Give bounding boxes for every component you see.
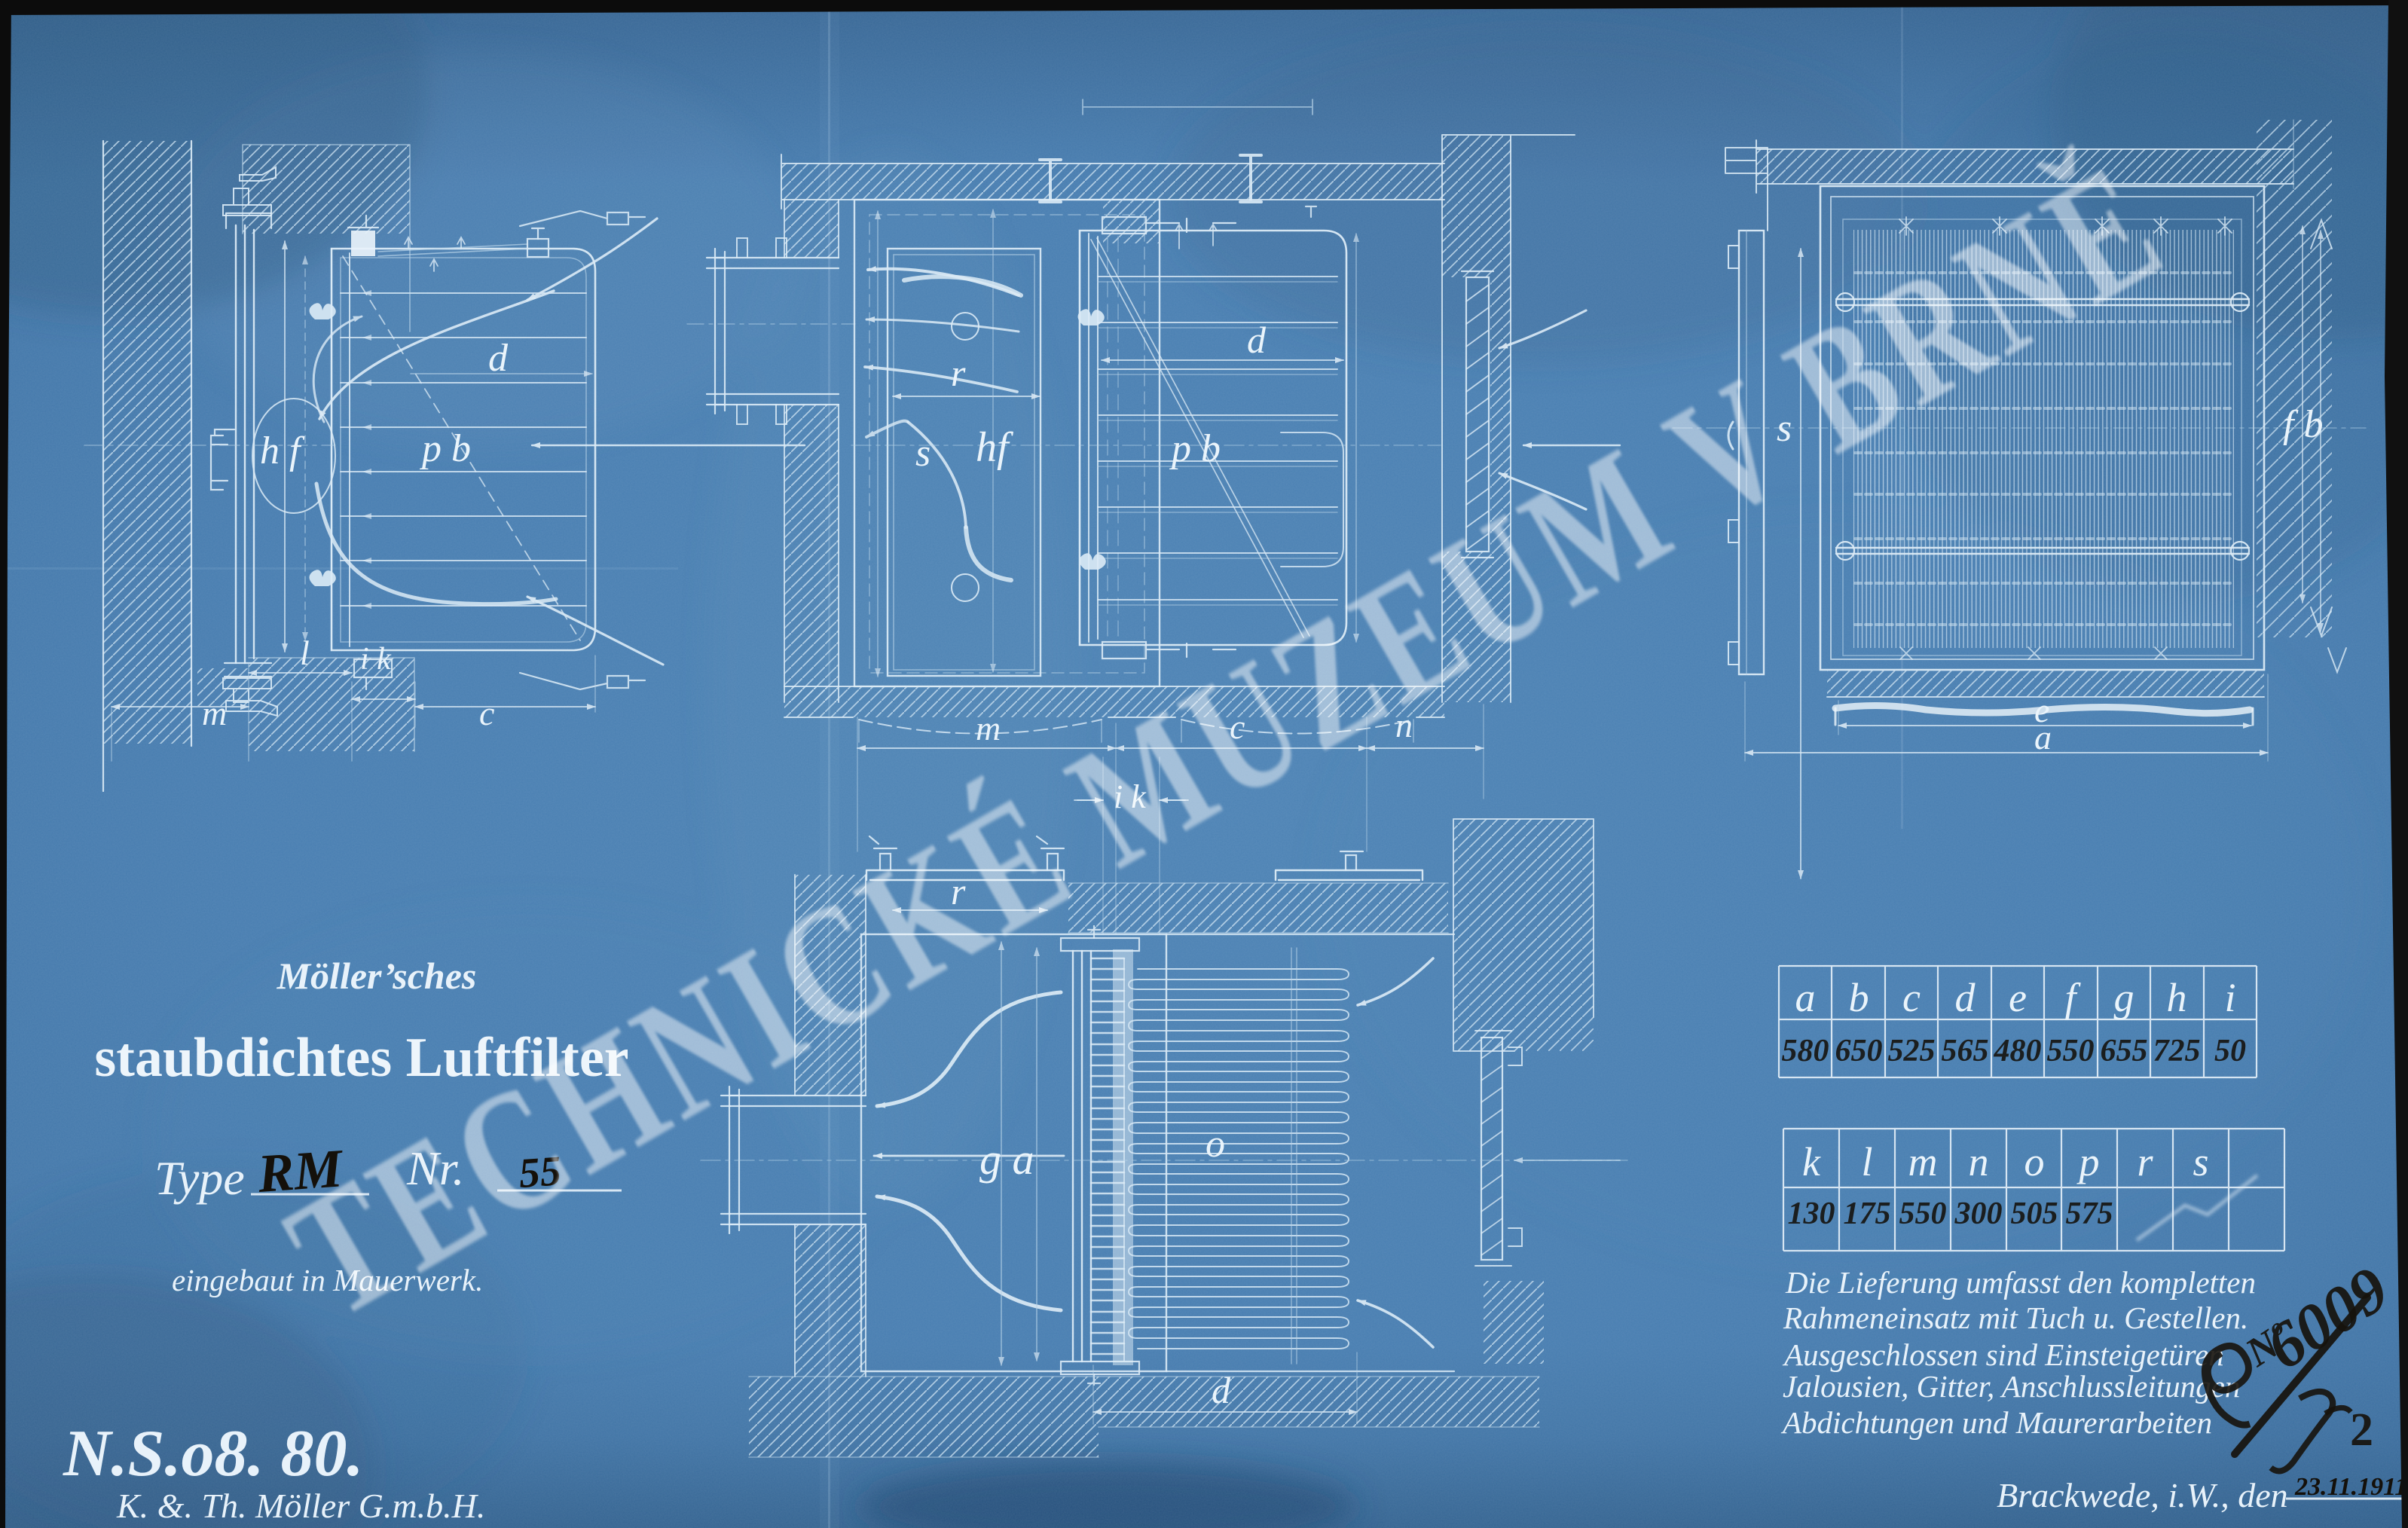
svg-text:505: 505 <box>2011 1196 2058 1231</box>
svg-text:300: 300 <box>1954 1196 2003 1231</box>
svg-text:N.S.o8. 80.: N.S.o8. 80. <box>63 1417 364 1490</box>
svg-text:Type: Type <box>154 1151 245 1205</box>
svg-text:h f: h f <box>260 429 305 472</box>
svg-text:Brackwede, i.W., den: Brackwede, i.W., den <box>1997 1476 2288 1514</box>
svg-text:d: d <box>1955 975 1976 1020</box>
svg-text:g: g <box>2114 975 2135 1020</box>
svg-text:s: s <box>2193 1139 2208 1184</box>
svg-text:655: 655 <box>2101 1034 2148 1068</box>
svg-text:565: 565 <box>1942 1034 1989 1068</box>
svg-text:r: r <box>2137 1139 2153 1184</box>
svg-text:i k: i k <box>360 642 392 677</box>
svg-text:d: d <box>1247 319 1267 361</box>
svg-text:650: 650 <box>1835 1034 1883 1068</box>
svg-text:m: m <box>1908 1139 1938 1184</box>
svg-text:Ausgeschlossen sind Einsteiget: Ausgeschlossen sind Einsteigetüren <box>1782 1337 2224 1372</box>
svg-text:o: o <box>1206 1123 1225 1166</box>
svg-text:175: 175 <box>1844 1196 1891 1231</box>
svg-text:p b: p b <box>419 427 471 470</box>
svg-text:550: 550 <box>1899 1196 1947 1231</box>
svg-text:d: d <box>488 337 509 380</box>
svg-text:g a: g a <box>979 1135 1034 1184</box>
svg-text:50: 50 <box>2214 1034 2246 1068</box>
svg-text:hf: hf <box>976 424 1014 471</box>
svg-text:i: i <box>2224 975 2235 1020</box>
svg-text:Rahmeneinsatz mit Tuch u. Gest: Rahmeneinsatz mit Tuch u. Gestellen. <box>1783 1300 2248 1335</box>
svg-text:m: m <box>976 709 1001 747</box>
svg-text:k: k <box>1802 1139 1821 1184</box>
svg-text:p b: p b <box>1169 427 1221 470</box>
svg-text:e: e <box>2009 975 2027 1020</box>
svg-text:550: 550 <box>2047 1034 2095 1068</box>
svg-text:o: o <box>2024 1139 2045 1184</box>
svg-text:d: d <box>1212 1369 1231 1411</box>
svg-text:f b: f b <box>2283 403 2323 446</box>
svg-text:l: l <box>300 634 310 672</box>
svg-text:Abdichtungen und Maurerarbeite: Abdichtungen und Maurerarbeiten <box>1780 1405 2212 1440</box>
svg-text:Möller’sches: Möller’sches <box>277 955 477 997</box>
svg-text:s: s <box>915 432 931 475</box>
svg-text:725: 725 <box>2153 1034 2201 1068</box>
svg-text:130: 130 <box>1788 1196 1835 1231</box>
svg-text:Jalousien, Gitter, Anschlussle: Jalousien, Gitter, Anschlussleitungen <box>1783 1369 2240 1404</box>
svg-text:n: n <box>1969 1139 1989 1184</box>
svg-text:23.11.1911.: 23.11.1911. <box>2294 1473 2408 1501</box>
svg-text:525: 525 <box>1888 1034 1936 1068</box>
svg-text:h: h <box>2167 975 2187 1020</box>
svg-text:a: a <box>1795 975 1816 1020</box>
svg-text:2: 2 <box>2350 1404 2373 1456</box>
svg-text:Die Lieferung umfasst den komp: Die Lieferung umfasst den kompletten <box>1785 1265 2256 1300</box>
svg-text:b: b <box>1849 975 1869 1020</box>
svg-text:c: c <box>1902 975 1921 1020</box>
svg-text:p: p <box>2076 1139 2100 1184</box>
svg-text:575: 575 <box>2066 1196 2113 1231</box>
svg-text:c: c <box>479 694 494 732</box>
svg-text:K. &. Th. Möller G.m.b.H.: K. &. Th. Möller G.m.b.H. <box>116 1487 485 1525</box>
svg-text:l: l <box>1861 1139 1872 1184</box>
svg-text:r: r <box>951 352 966 394</box>
svg-text:580: 580 <box>1782 1034 1829 1068</box>
svg-text:a: a <box>2034 718 2052 756</box>
svg-text:480: 480 <box>1994 1034 2042 1068</box>
svg-text:m: m <box>202 694 227 732</box>
